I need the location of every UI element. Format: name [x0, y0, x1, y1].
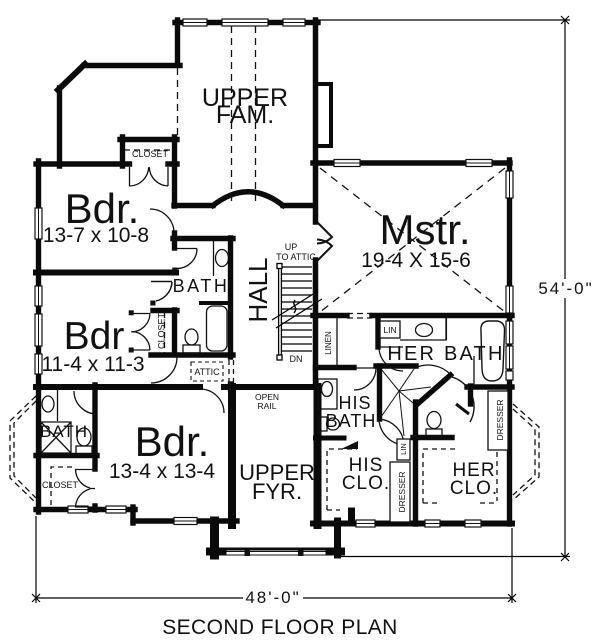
svg-text:TO ATTIC: TO ATTIC	[276, 252, 316, 262]
svg-text:UP: UP	[285, 242, 298, 252]
svg-text:13-4 x 13-4: 13-4 x 13-4	[109, 460, 216, 483]
svg-text:CLOSET: CLOSET	[132, 149, 169, 159]
svg-text:11-4 x 11-3: 11-4 x 11-3	[41, 353, 144, 376]
svg-text:DRESSER: DRESSER	[397, 471, 407, 512]
svg-text:FYR.: FYR.	[252, 479, 302, 504]
svg-text:CLOSET: CLOSET	[157, 312, 167, 349]
svg-text:SECOND FLOOR PLAN: SECOND FLOOR PLAN	[162, 616, 398, 639]
svg-text:54'-0": 54'-0"	[538, 279, 593, 298]
svg-text:19-4 X 15-6: 19-4 X 15-6	[361, 249, 471, 272]
svg-text:48'-0": 48'-0"	[245, 588, 300, 607]
svg-text:13-7 x 10-8: 13-7 x 10-8	[43, 224, 149, 247]
svg-text:RAIL: RAIL	[258, 401, 277, 411]
svg-text:BATH: BATH	[326, 411, 377, 431]
svg-text:BATH: BATH	[40, 422, 88, 441]
svg-text:CLOSET: CLOSET	[42, 480, 79, 490]
svg-text:Bdr: Bdr	[64, 315, 125, 358]
svg-text:CLO.: CLO.	[450, 478, 498, 499]
svg-text:BATH: BATH	[173, 276, 230, 296]
svg-text:LINEN: LINEN	[324, 331, 333, 355]
svg-text:LIN: LIN	[383, 325, 396, 335]
svg-text:HALL: HALL	[243, 257, 273, 322]
svg-text:Bdr.: Bdr.	[135, 418, 210, 465]
svg-text:HER BATH: HER BATH	[387, 343, 504, 365]
svg-text:CLO.: CLO.	[342, 473, 390, 494]
svg-text:Mstr.: Mstr.	[380, 206, 471, 253]
svg-text:DRESSER: DRESSER	[495, 399, 505, 440]
svg-text:ATTIC: ATTIC	[194, 367, 220, 377]
svg-text:DN: DN	[290, 354, 303, 364]
svg-text:HIS: HIS	[338, 393, 371, 413]
svg-text:LIN: LIN	[399, 443, 408, 455]
svg-text:FAM.: FAM.	[216, 101, 274, 129]
